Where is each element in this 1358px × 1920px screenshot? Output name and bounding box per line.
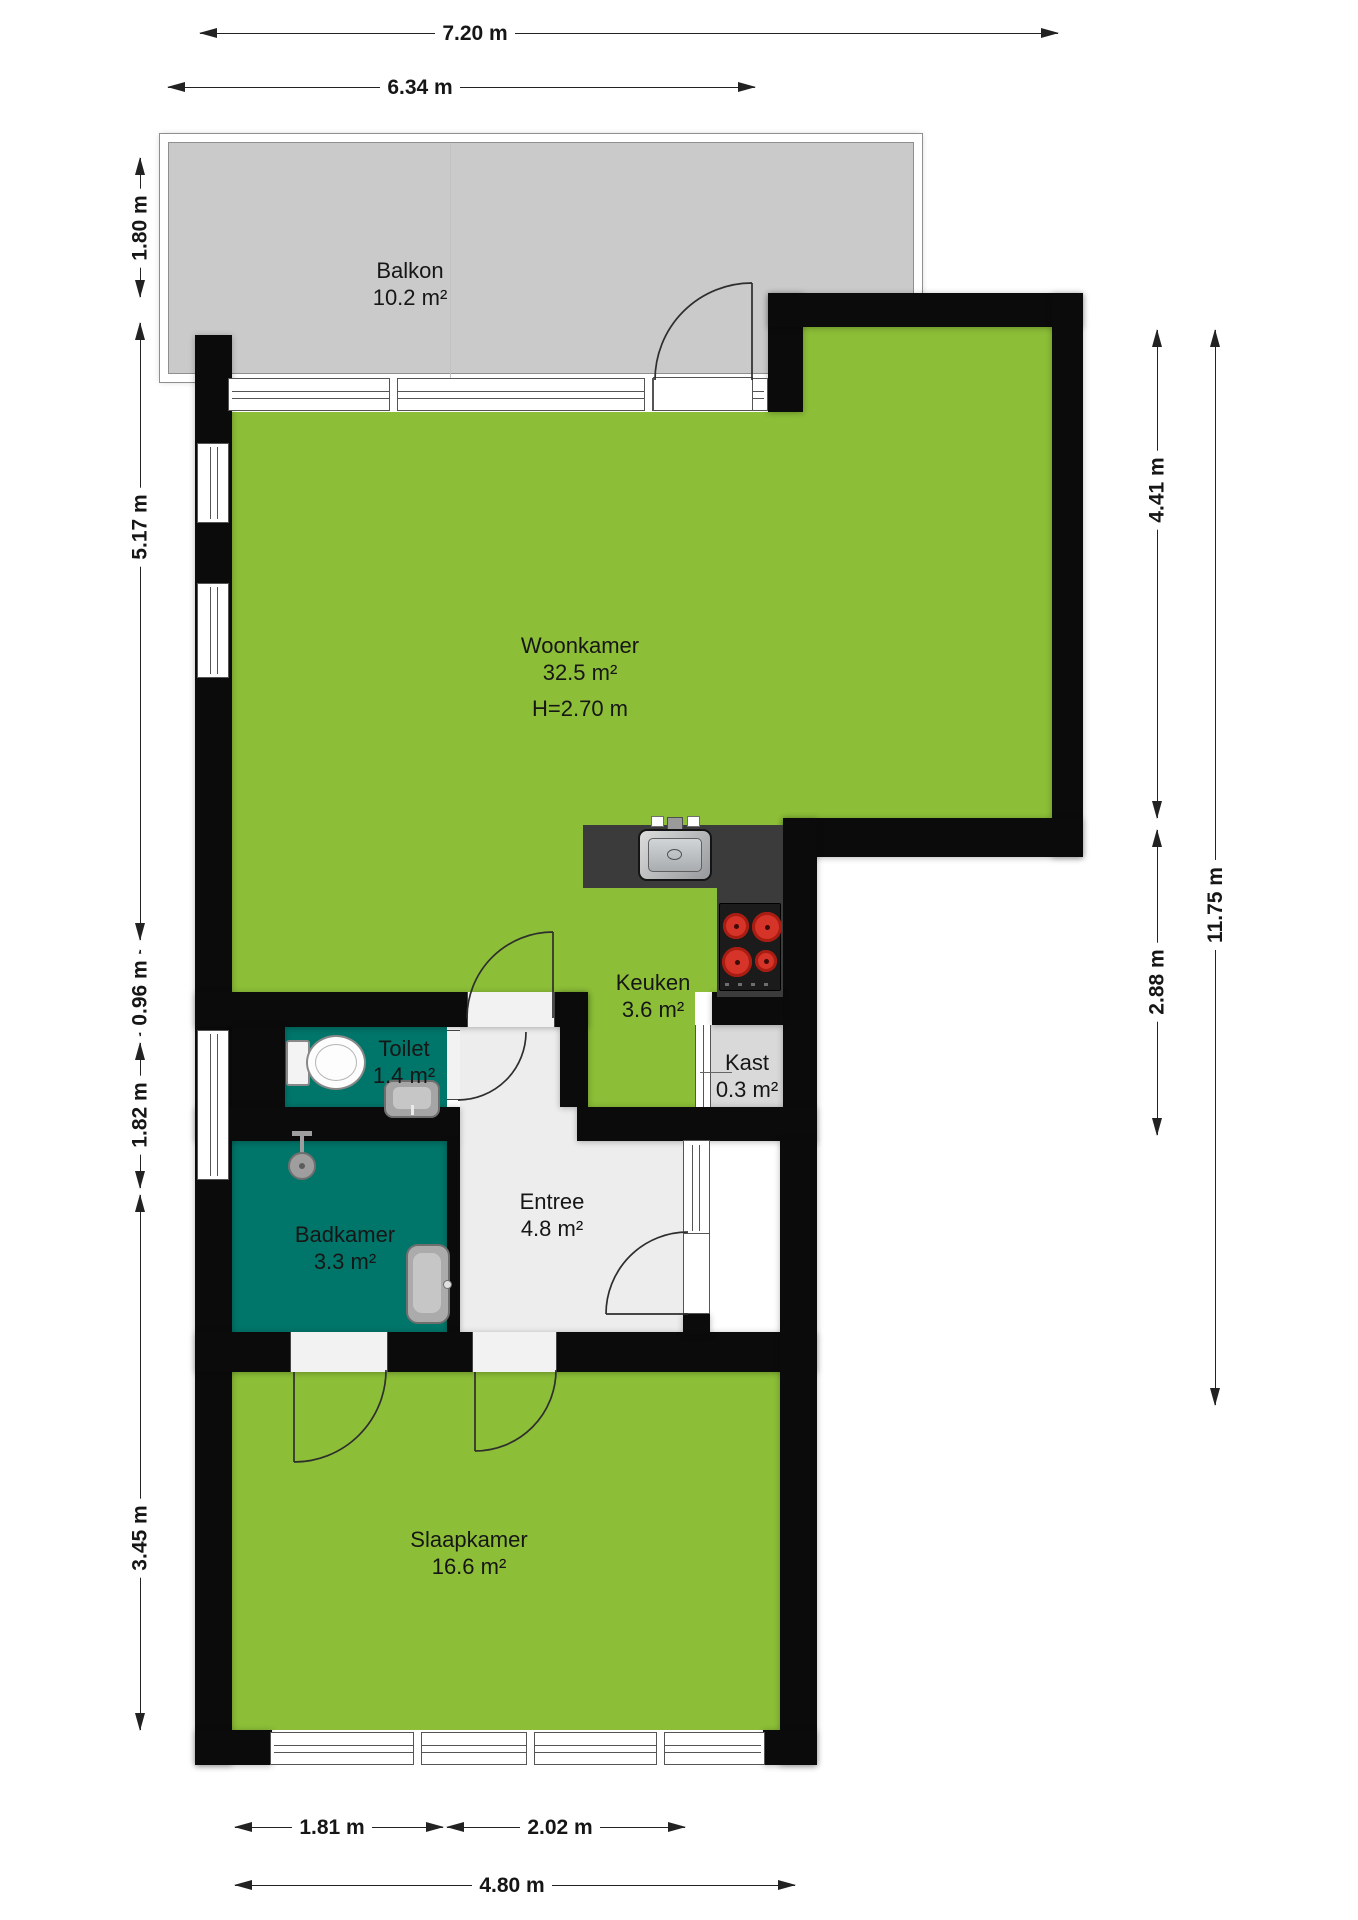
wall-right-exterior [1052, 293, 1083, 857]
wall-kast-bottom [577, 1107, 817, 1141]
wall-toilet-left-chunk [232, 1027, 285, 1107]
front-door-frame [683, 1140, 710, 1314]
dimension-left-woonkamer: 5.17 m [140, 323, 141, 940]
wall-slaapkamer-bottom-right [763, 1730, 817, 1765]
window-toilet-left [197, 1030, 229, 1180]
shower-head-icon [288, 1152, 316, 1180]
door-opening-entree-slaapkamer [472, 1332, 557, 1372]
dimension-right-total: 11.75 m [1215, 330, 1216, 1405]
dimension-top-outer: 7.20 m [200, 33, 1058, 34]
wall-woonkamer-bottom-right [783, 818, 1083, 857]
dimension-bottom-window-right: 2.02 m [447, 1827, 685, 1828]
room-label-keuken: Keuken 3.6 m² [553, 969, 753, 1023]
floorplan-canvas: Balkon 10.2 m² Woonkamer 32.5 m² H=2.70 … [0, 0, 1358, 1920]
dimension-right-kitchen: 2.88 m [1157, 830, 1158, 1135]
woonkamer-floor-upper-right [803, 327, 1052, 412]
faucet-handle-left-icon [651, 816, 664, 827]
window-woonkamer-left-1 [197, 443, 229, 523]
burner-icon [755, 950, 777, 972]
door-opening-badkamer [290, 1332, 388, 1372]
room-label-kast: Kast 0.3 m² [647, 1049, 847, 1103]
wall-slaapkamer-bottom-left [195, 1730, 272, 1765]
wall-top-right [768, 293, 1083, 327]
window-slaapkamer-band [270, 1732, 765, 1765]
wall-frontdoor-base [683, 1314, 710, 1334]
dimension-left-badkamer: 1.82 m [140, 1043, 141, 1188]
dimension-left-balcony: 1.80 m [140, 158, 141, 297]
room-label-slaapkamer: Slaapkamer 16.6 m² [369, 1526, 569, 1580]
dimension-left-toilet: 0.96 m [140, 950, 141, 1036]
dimension-bottom-window-left: 1.81 m [235, 1827, 443, 1828]
room-label-entree: Entree 4.8 m² [452, 1188, 652, 1242]
wall-slaapkamer-right [780, 1140, 817, 1765]
woonkamer-floor [230, 412, 1052, 818]
room-label-badkamer: Badkamer 3.3 m² [245, 1221, 445, 1275]
room-label-toilet: Toilet 1.4 m² [304, 1035, 504, 1089]
dimension-left-slaapkamer: 3.45 m [140, 1195, 141, 1730]
burner-icon [752, 912, 782, 942]
dimension-bottom-total: 4.80 m [235, 1885, 795, 1886]
dimension-right-woonkamer: 4.41 m [1157, 330, 1158, 818]
burner-icon [723, 913, 749, 939]
sink-drain-icon [667, 849, 682, 860]
room-label-balkon: Balkon 10.2 m² [310, 257, 510, 311]
balcony-door-opening [653, 377, 753, 411]
dimension-top-inner: 6.34 m [168, 87, 755, 88]
faucet-handle-right-icon [687, 816, 700, 827]
room-label-woonkamer: Woonkamer 32.5 m² H=2.70 m [480, 632, 680, 722]
door-opening-woonkamer [467, 992, 555, 1027]
window-woonkamer-left-2 [197, 583, 229, 678]
